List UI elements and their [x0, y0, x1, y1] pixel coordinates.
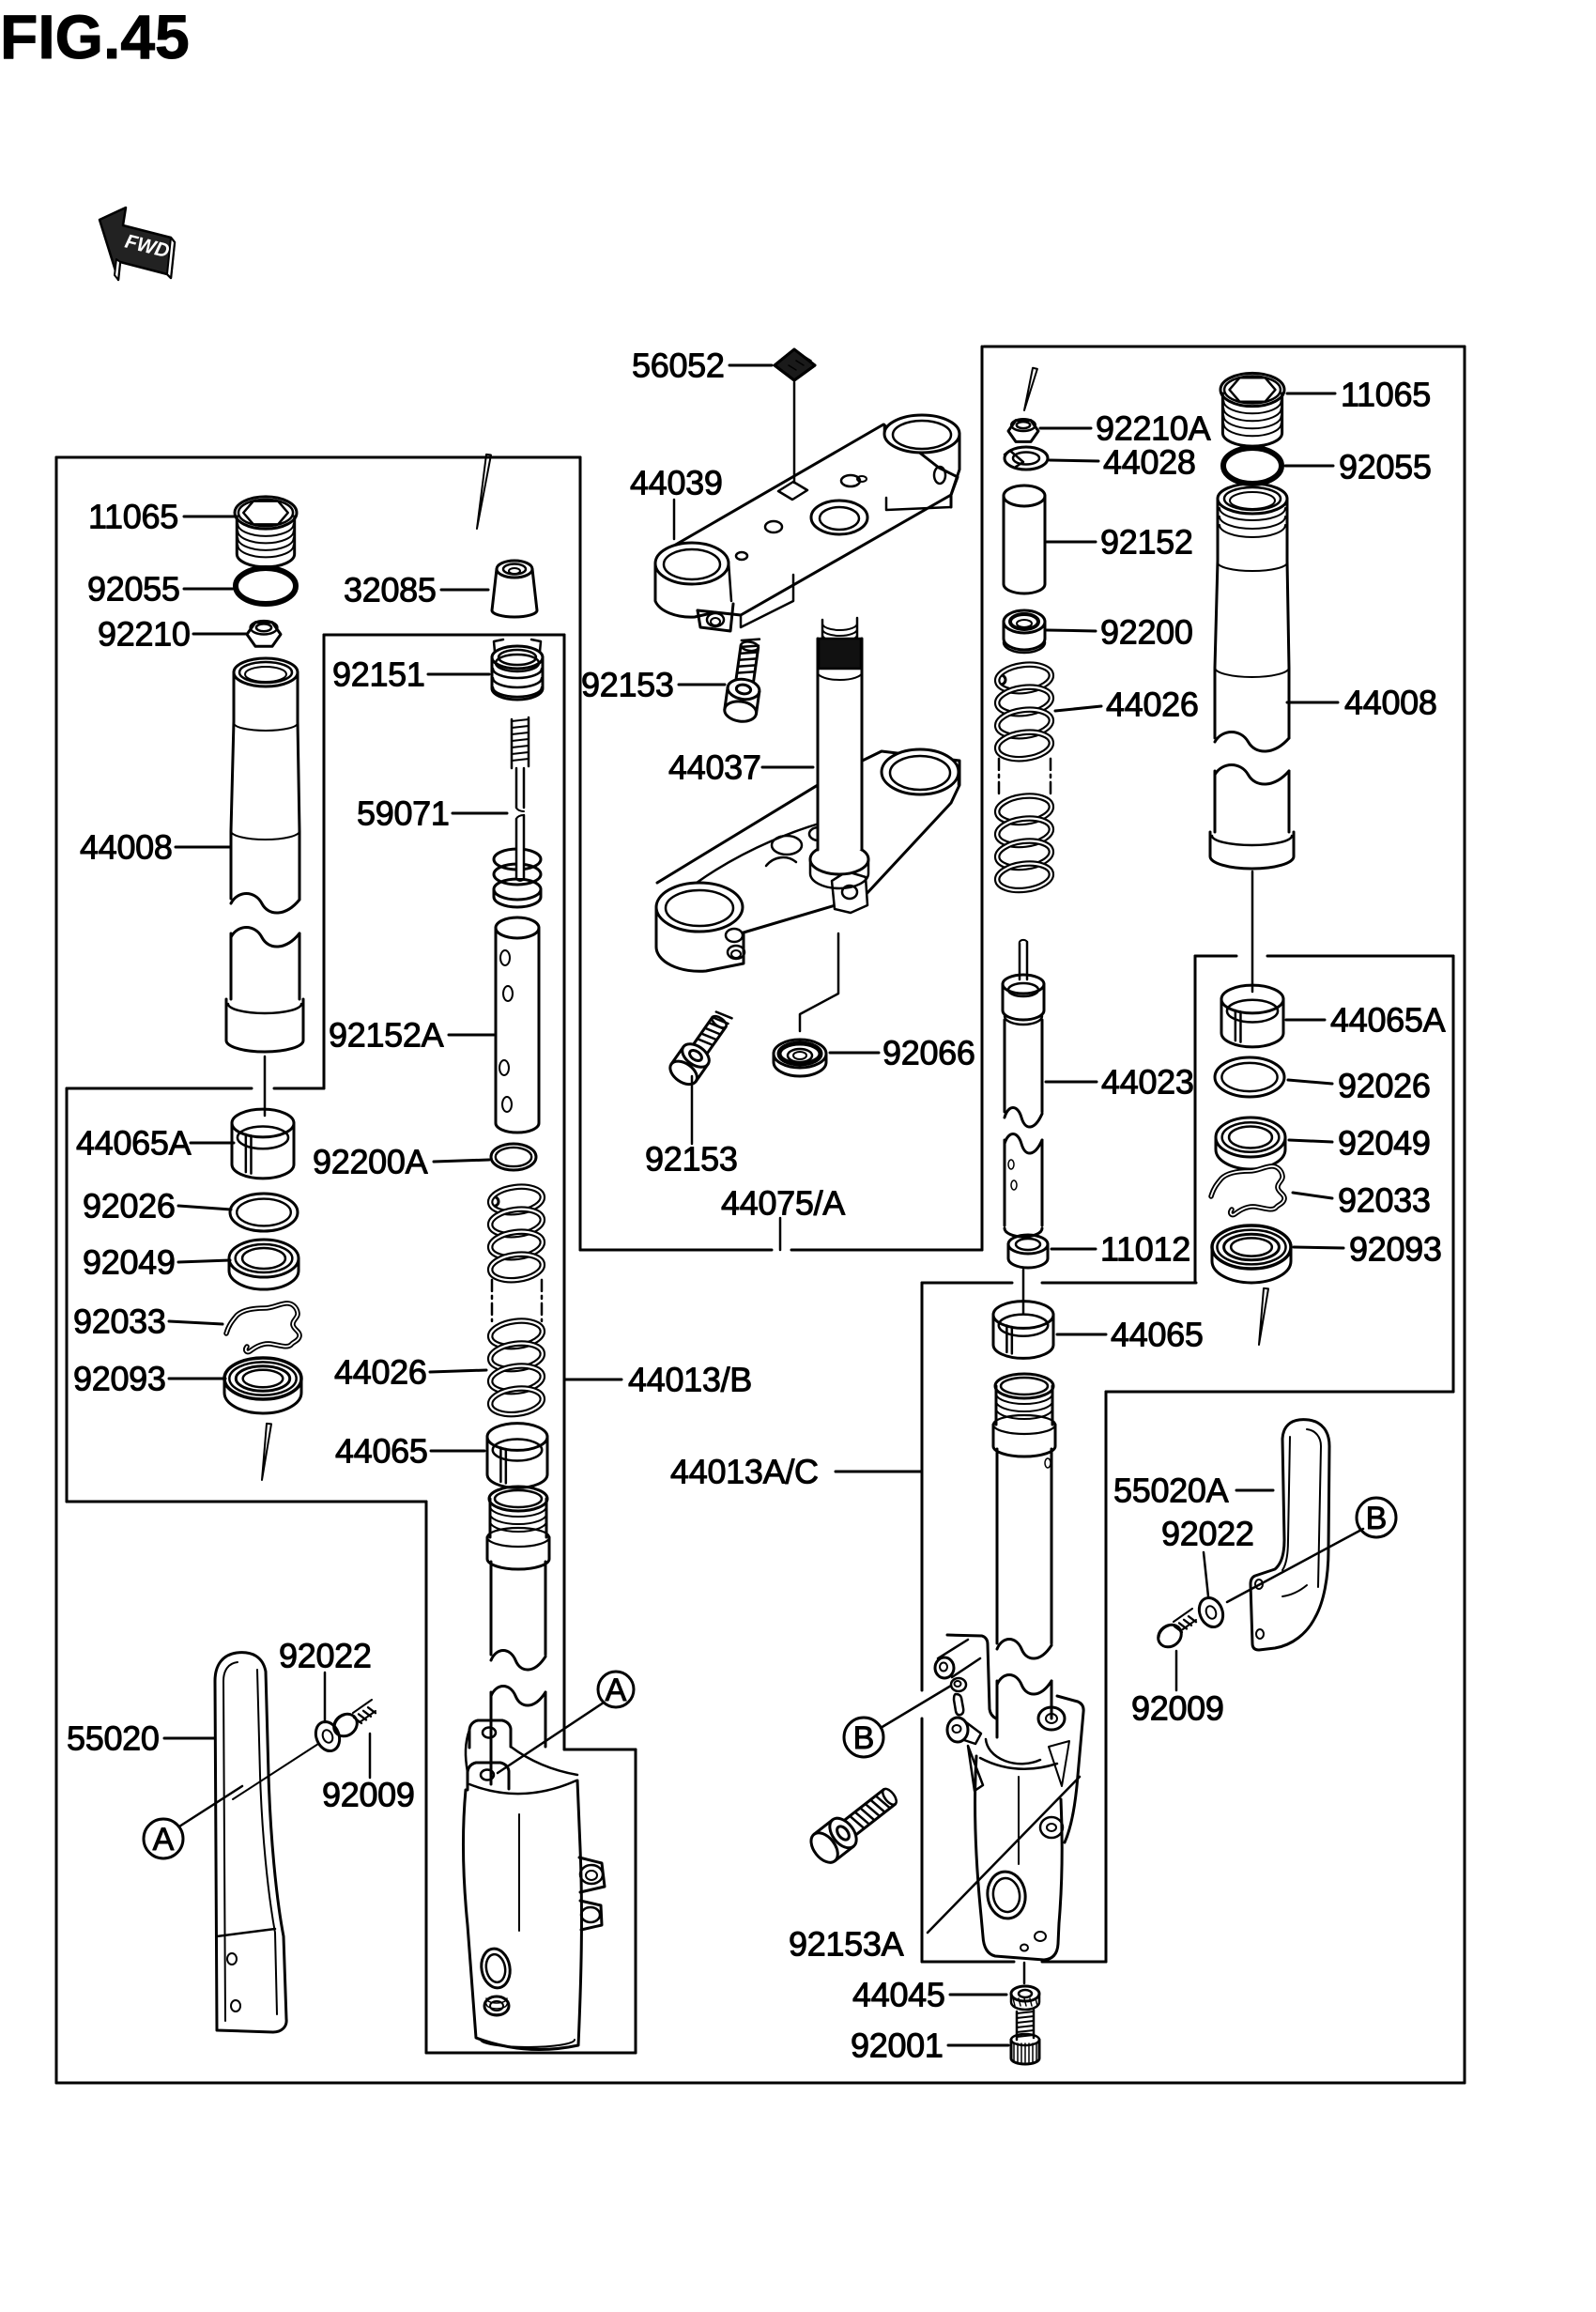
svg-text:92009: 92009	[1131, 1689, 1224, 1728]
svg-text:44013A/C: 44013A/C	[670, 1453, 819, 1491]
svg-text:92026: 92026	[83, 1187, 176, 1225]
svg-text:44008: 44008	[1344, 684, 1437, 722]
svg-text:11012: 11012	[1100, 1230, 1190, 1269]
svg-text:55020A: 55020A	[1113, 1472, 1229, 1510]
svg-text:92200A: 92200A	[313, 1143, 428, 1181]
svg-text:92049: 92049	[83, 1243, 176, 1282]
svg-text:44008: 44008	[80, 828, 173, 867]
svg-text:92210: 92210	[98, 615, 191, 654]
svg-text:44045: 44045	[852, 1976, 945, 2014]
svg-text:92055: 92055	[1339, 448, 1432, 486]
svg-text:44013/B: 44013/B	[628, 1361, 752, 1399]
svg-text:92151: 92151	[332, 655, 425, 694]
svg-text:92153: 92153	[645, 1140, 738, 1179]
svg-text:44026: 44026	[334, 1353, 427, 1392]
svg-text:44065A: 44065A	[1330, 1001, 1446, 1040]
svg-text:44023: 44023	[1101, 1063, 1194, 1102]
svg-text:32085: 32085	[344, 571, 437, 609]
svg-text:92009: 92009	[322, 1776, 415, 1814]
svg-text:92152A: 92152A	[329, 1016, 444, 1055]
svg-text:92152: 92152	[1100, 523, 1193, 562]
svg-text:92022: 92022	[279, 1637, 372, 1675]
svg-text:92055: 92055	[87, 570, 180, 609]
svg-text:44065A: 44065A	[76, 1124, 192, 1163]
svg-text:44039: 44039	[630, 464, 723, 502]
svg-text:A: A	[606, 1672, 627, 1708]
svg-text:92022: 92022	[1161, 1515, 1254, 1553]
svg-text:B: B	[1366, 1501, 1388, 1536]
svg-text:92026: 92026	[1338, 1067, 1431, 1105]
svg-text:92093: 92093	[73, 1360, 166, 1398]
svg-text:92153A: 92153A	[789, 1925, 904, 1964]
svg-text:92066: 92066	[882, 1034, 975, 1072]
svg-text:92001: 92001	[851, 2027, 944, 2065]
svg-text:92033: 92033	[73, 1302, 166, 1341]
svg-text:44028: 44028	[1103, 443, 1196, 482]
svg-text:55020: 55020	[67, 1719, 160, 1758]
svg-text:A: A	[153, 1822, 175, 1857]
svg-text:92049: 92049	[1338, 1124, 1431, 1163]
svg-text:FIG.45: FIG.45	[0, 2, 190, 71]
svg-text:B: B	[853, 1720, 875, 1756]
svg-text:92210A: 92210A	[1096, 409, 1211, 448]
svg-text:92033: 92033	[1338, 1181, 1431, 1220]
svg-text:44037: 44037	[668, 748, 761, 787]
svg-text:92093: 92093	[1349, 1230, 1442, 1269]
svg-text:11065: 11065	[88, 498, 178, 536]
svg-text:44075/A: 44075/A	[721, 1184, 845, 1223]
svg-text:44065: 44065	[335, 1432, 428, 1471]
svg-text:44026: 44026	[1106, 686, 1199, 724]
svg-text:56052: 56052	[632, 347, 725, 385]
svg-text:59071: 59071	[357, 794, 450, 833]
svg-text:11065: 11065	[1341, 376, 1431, 414]
svg-text:92153: 92153	[581, 666, 674, 704]
svg-text:92200: 92200	[1100, 613, 1193, 652]
svg-text:44065: 44065	[1111, 1316, 1204, 1354]
